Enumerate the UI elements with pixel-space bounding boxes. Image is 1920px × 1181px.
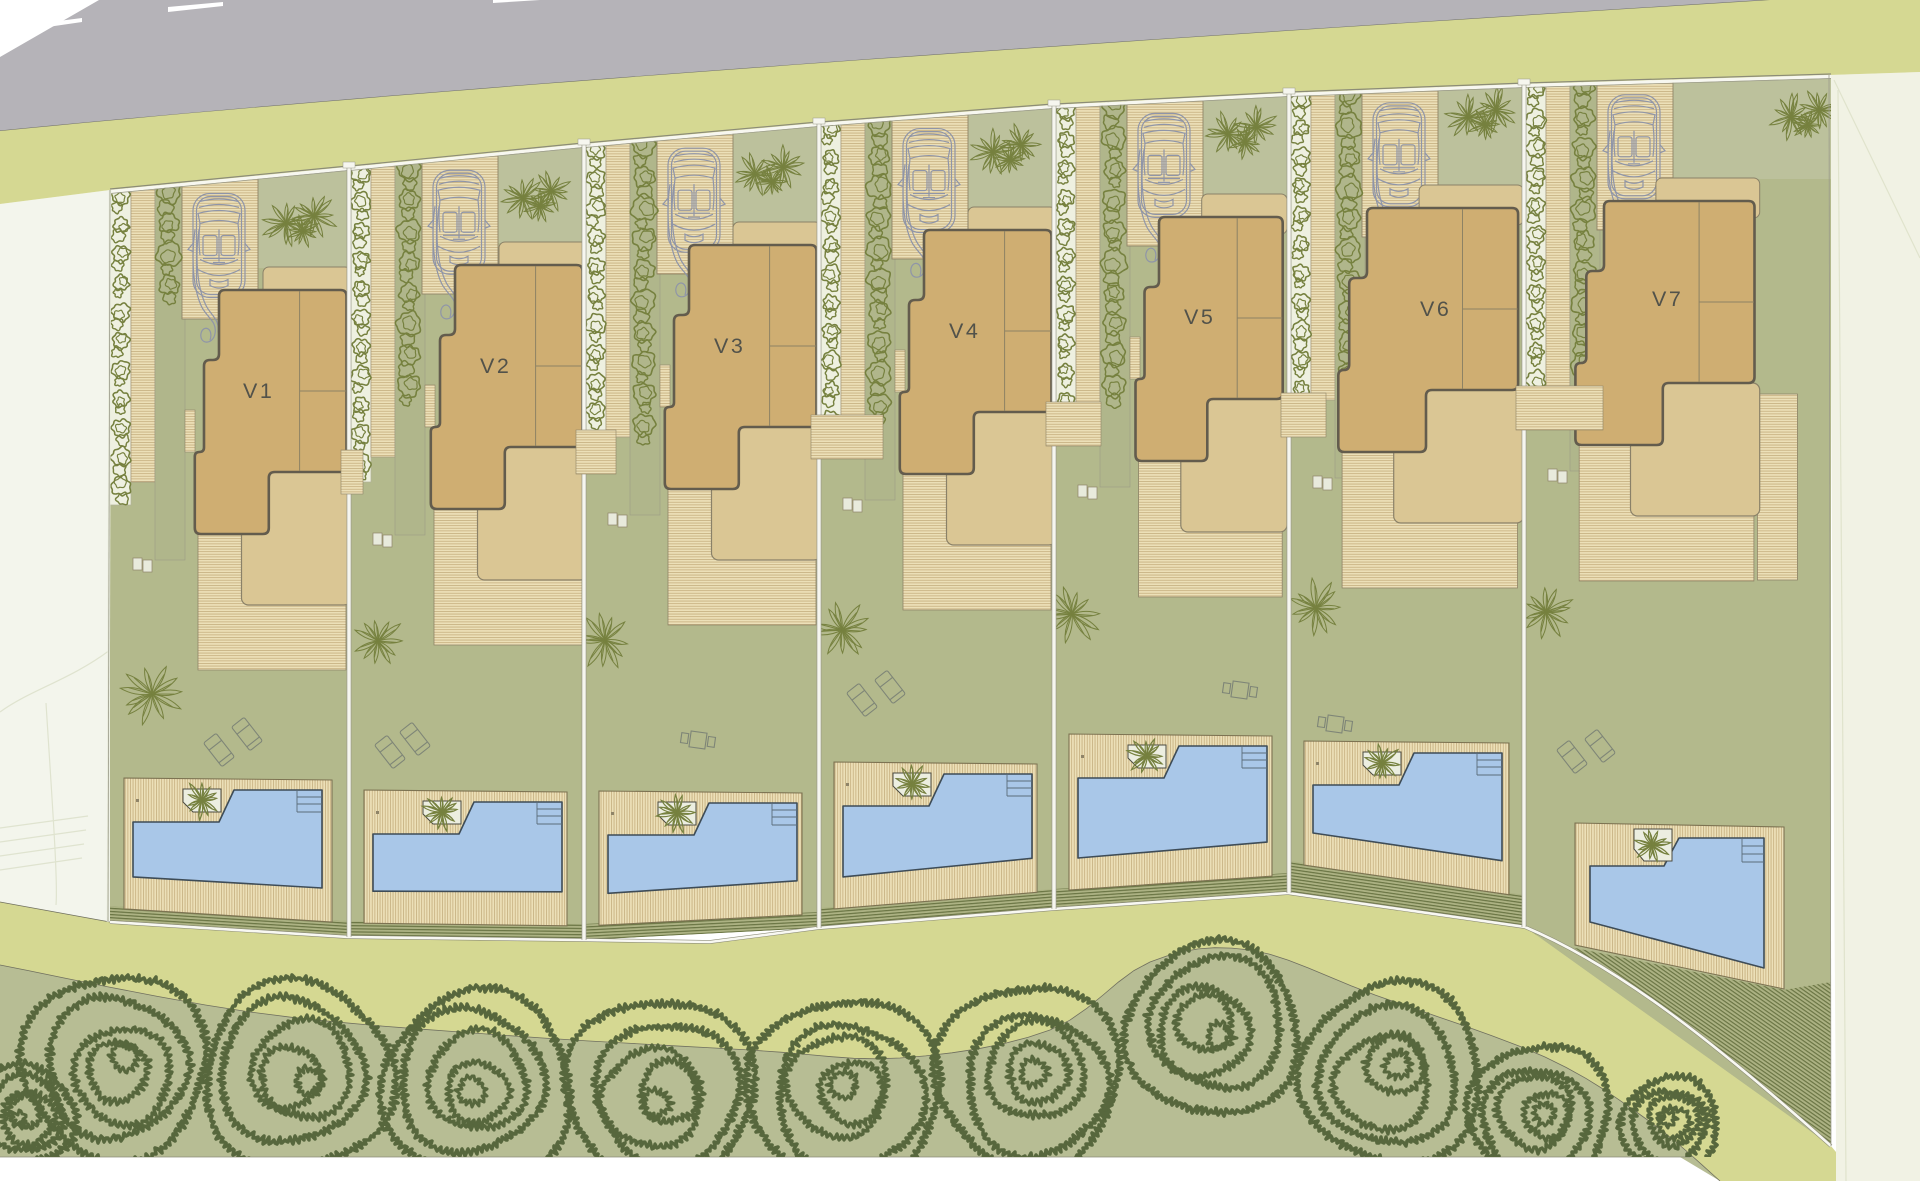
- svg-text:V4: V4: [949, 319, 980, 343]
- svg-text:V6: V6: [1420, 297, 1451, 321]
- svg-text:V7: V7: [1652, 287, 1683, 311]
- svg-text:V1: V1: [243, 379, 274, 403]
- svg-text:V5: V5: [1184, 305, 1215, 329]
- svg-text:V3: V3: [714, 334, 745, 358]
- svg-text:V2: V2: [480, 354, 511, 378]
